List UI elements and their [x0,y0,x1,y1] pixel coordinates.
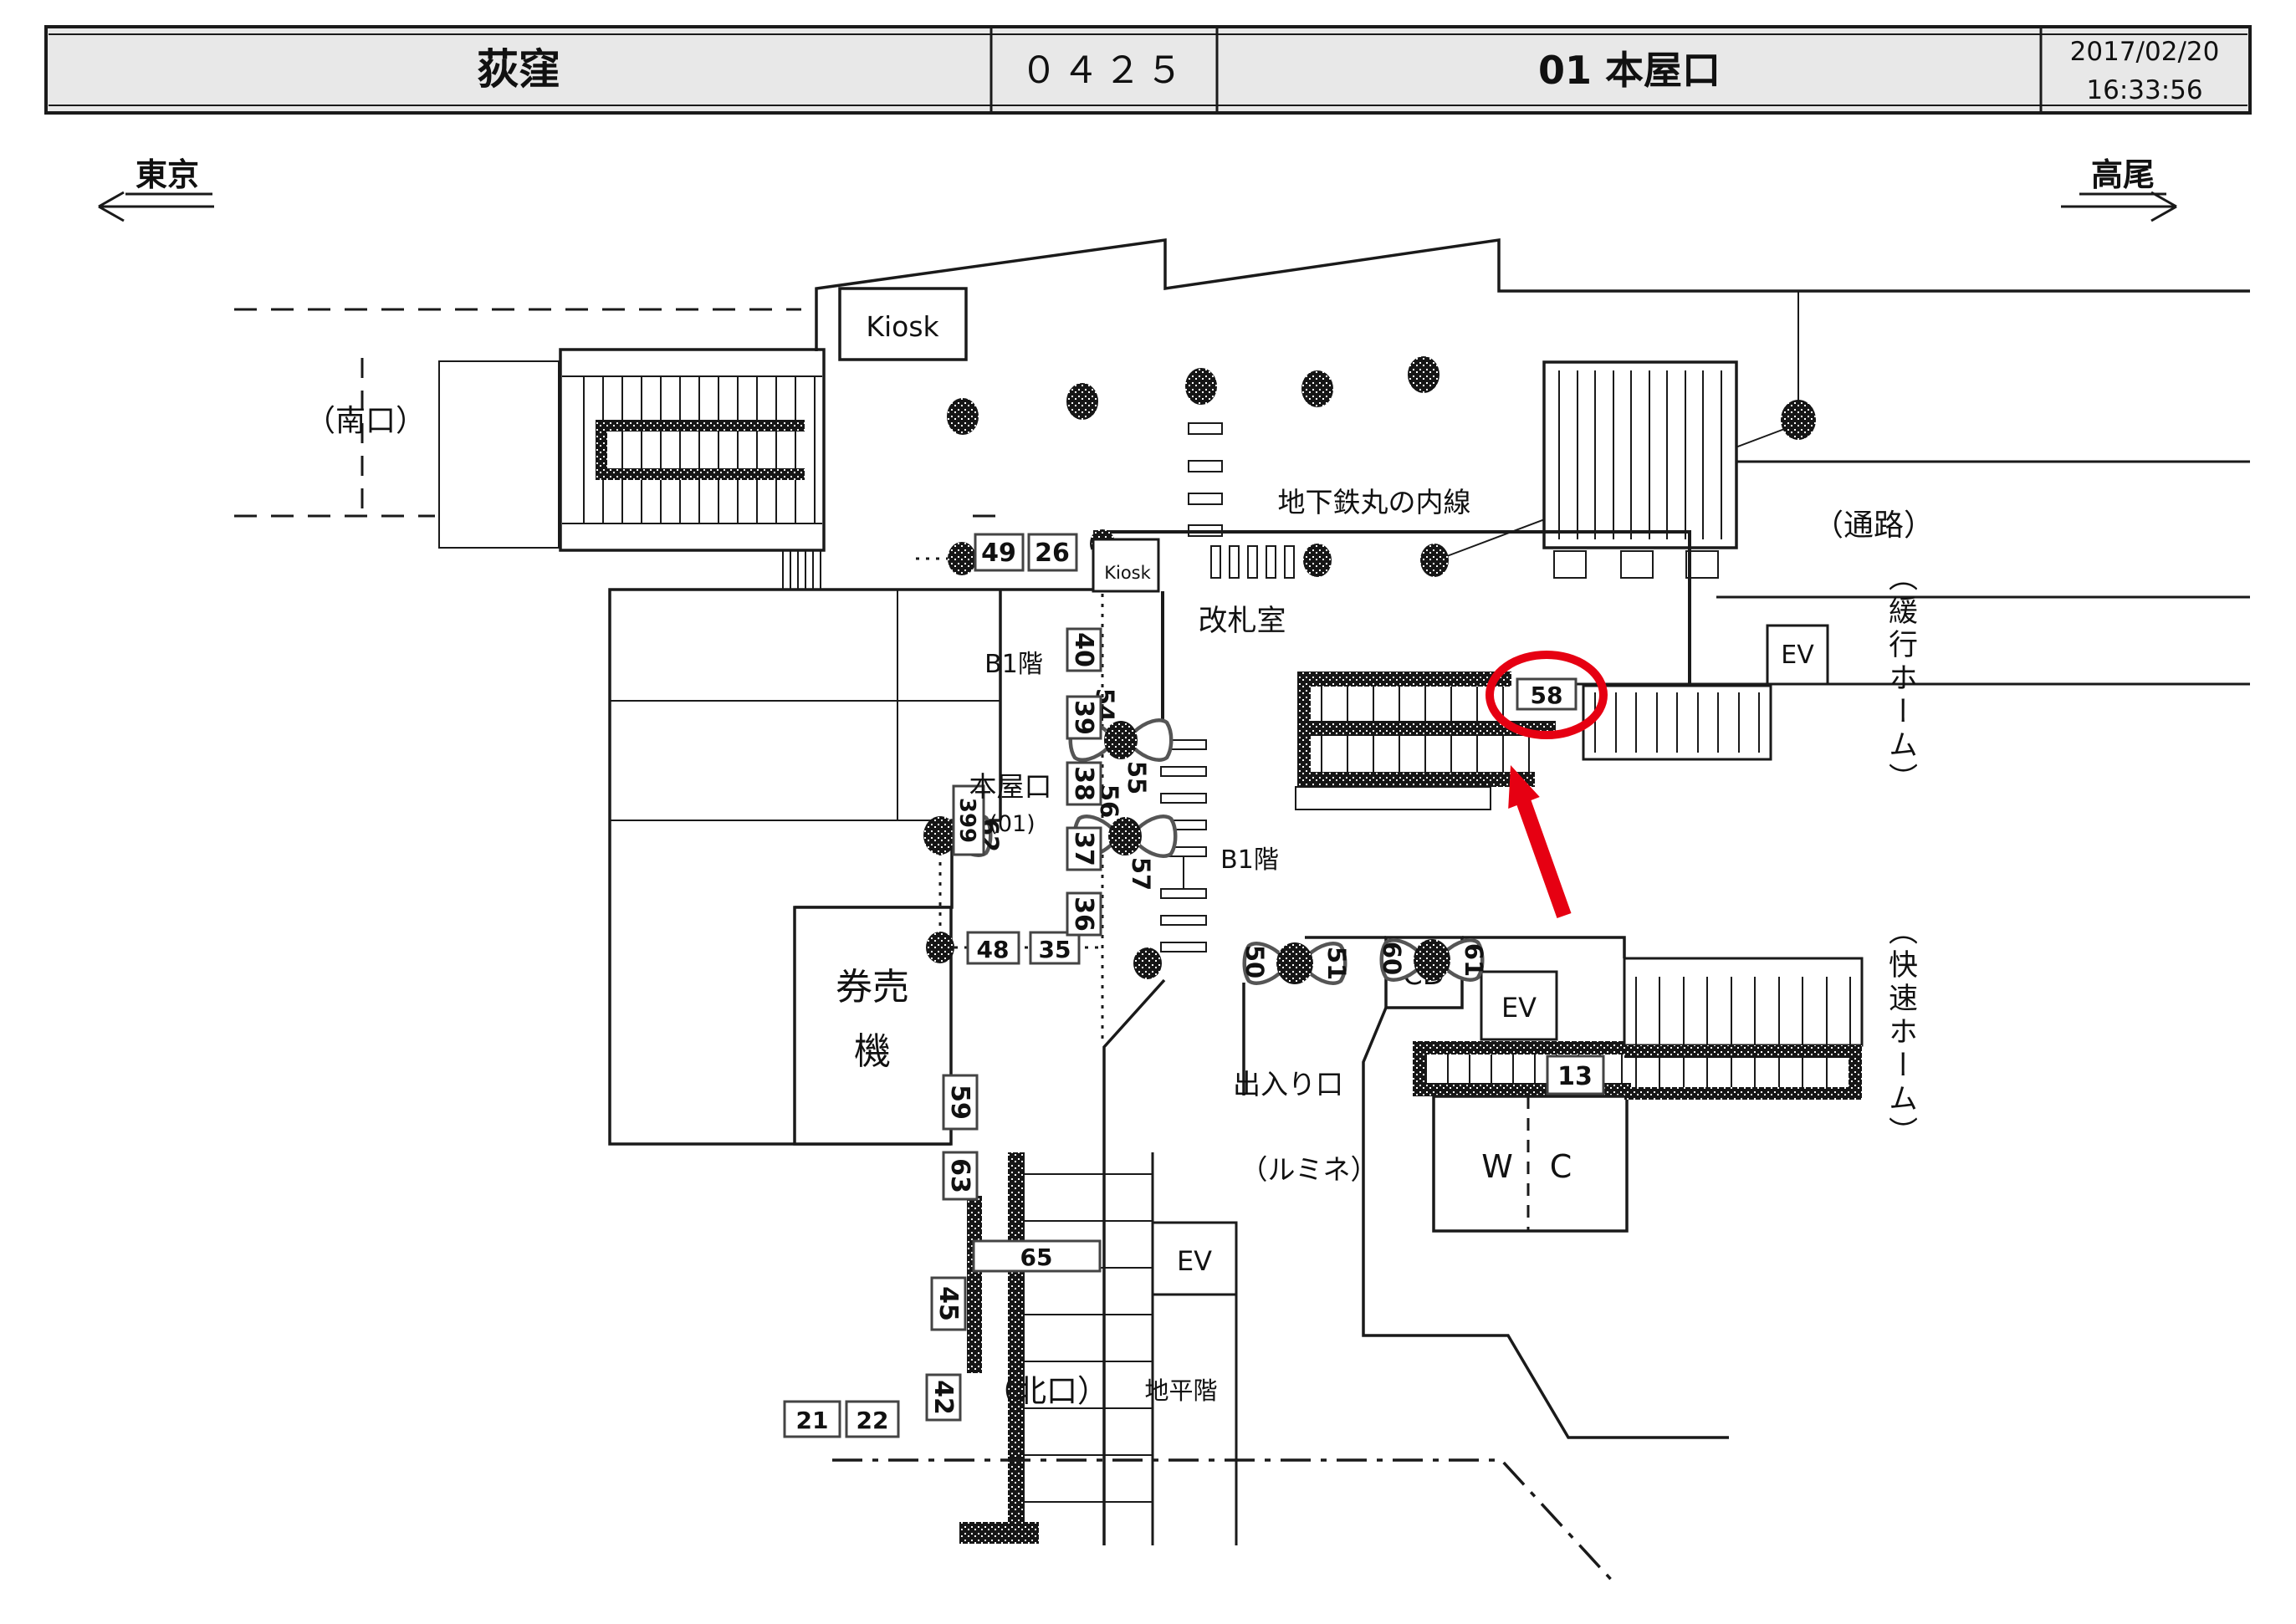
pillar-icon [1781,400,1816,440]
camera-number[interactable]: 37 [1069,831,1098,866]
b1-label: B1階 [984,650,1043,679]
camera-number[interactable]: 21 [796,1407,829,1434]
floor-plan-svg: 荻窪 ０４２５ 01 本屋口 2017/02/20 16:33:56 東京 高尾… [0,0,2296,1624]
ground-floor-label: 地平階 [1144,1376,1217,1405]
gate-office-label: 改札室 [1198,605,1286,638]
direction-east: 高尾 [2061,156,2176,221]
camera-number[interactable]: 38 [1069,766,1098,801]
camera-number[interactable]: 35 [1039,936,1071,963]
south-staircase [560,350,824,590]
camera-icon [923,816,957,855]
camera-number[interactable]: 39 [1069,700,1098,735]
metro-line-label: 地下鉄丸の内線 [1278,486,1471,518]
wc-box [1434,1096,1627,1231]
camera-number[interactable]: 59 [945,1085,974,1120]
station-name: 荻窪 [477,45,560,94]
camera-number[interactable]: 57 [1127,857,1155,891]
pillar-icon [948,542,976,575]
wc-label: C [1550,1148,1572,1185]
header: 荻窪 ０４２５ 01 本屋口 2017/02/20 16:33:56 [46,27,2250,113]
ticket-machines-label: 機 [854,1030,891,1073]
camera-icon [1414,939,1450,981]
wc-label: W [1481,1148,1513,1185]
camera-number[interactable]: 58 [1531,682,1563,709]
camera-number[interactable]: 60 [1378,942,1406,975]
b1-label: B1階 [1220,845,1279,875]
pillar-icon [1301,370,1333,407]
camera-number[interactable]: 63 [945,1158,974,1193]
rapid-platform-staircase [1624,958,1862,1100]
kiosk-concourse-group: Kiosk [1093,539,1158,591]
direction-west: 東京 [99,156,214,221]
pillar-icon [1303,544,1332,577]
camera-number[interactable]: 399 [954,798,979,843]
pillar-icon [1408,356,1439,393]
camera-number[interactable]: 36 [1069,896,1098,932]
pillar-icon [947,398,979,435]
doorway-label: 出入り口 [1233,1068,1343,1101]
rapid-platform-label: （快速ホーム） [1884,916,1918,1150]
pillar-icon [1420,544,1449,577]
passage-label: （通路） [1813,508,1934,543]
camera-number[interactable]: 51 [1322,947,1351,980]
main-gate-code: (01) [989,811,1035,837]
pillar-icon [1133,947,1162,979]
north-exit-label: （北口） [984,1373,1108,1409]
header-date: 2017/02/20 [2070,37,2220,67]
kiosk-upper-label: Kiosk [866,310,939,343]
passage-staircase [1544,362,1736,578]
elevator-label: EV [1781,641,1814,670]
header-time: 16:33:56 [2086,75,2202,105]
direction-east-label: 高尾 [2091,156,2155,193]
elevator-label: EV [1177,1245,1212,1277]
escalator-rail [596,420,805,432]
elevator-label: EV [1501,992,1537,1024]
lumine-label: （ルミネ） [1240,1153,1378,1186]
camera-number[interactable]: 45 [933,1286,963,1321]
camera-number[interactable]: 50 [1240,945,1269,978]
station-map-screen: 荻窪 ０４２５ 01 本屋口 2017/02/20 16:33:56 東京 高尾… [0,0,2296,1624]
local-platform-stair-east: EV [1583,626,1828,759]
camera-number[interactable]: 55 [1122,761,1151,794]
highlight-arrow-icon [1508,765,1571,918]
camera-number[interactable]: 49 [981,539,1016,568]
camera-number[interactable]: 40 [1069,632,1098,667]
station-code: ０４２５ [1020,49,1188,92]
camera-number[interactable]: 61 [1460,943,1488,977]
escalator-rail [596,468,805,480]
pillar-icon [1185,368,1217,405]
wc-area: W C [1434,1096,1627,1231]
local-platform-label: （緩行ホーム） [1884,562,1918,796]
camera-number[interactable]: 48 [977,936,1010,963]
camera-icon [926,932,954,963]
main-gate-label: 本屋口 [969,770,1052,803]
stair-comb [783,550,821,590]
camera-number[interactable]: 13 [1557,1062,1593,1091]
ticket-machines-label: 券売 [836,966,909,1009]
camera-number[interactable]: 65 [1020,1244,1053,1271]
direction-west-label: 東京 [136,156,199,193]
south-overpass-room [439,361,559,548]
ground-boundary-line [832,1460,1614,1583]
south-exit-label: （南口） [305,404,426,438]
camera-icon [1276,942,1313,984]
camera-icon [1104,721,1138,759]
camera-icon [1108,817,1142,855]
north-staircase: EV [959,1152,1236,1545]
camera-number[interactable]: 22 [857,1407,889,1434]
kiosk-concourse-label: Kiosk [1104,563,1151,583]
pillar-icon [1066,383,1098,420]
view-name: 01 本屋口 [1538,48,1721,93]
camera-number[interactable]: 26 [1035,539,1070,568]
camera-number[interactable]: 42 [928,1380,958,1415]
